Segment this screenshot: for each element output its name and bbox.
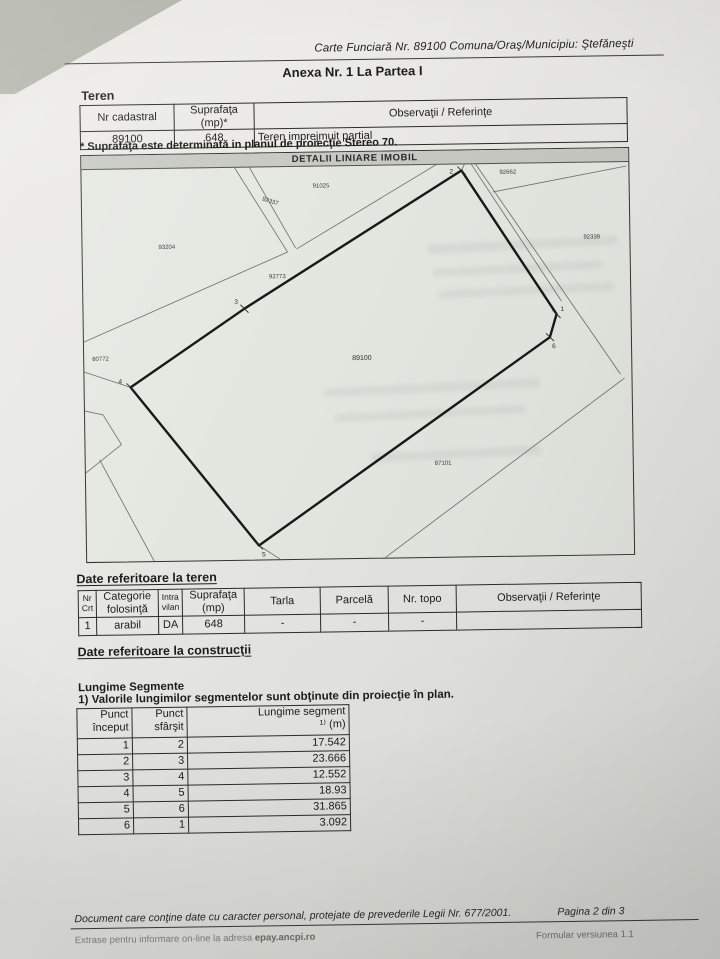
teren-details-table: Nr Crt Categorie folosinţă Intra vilan S… bbox=[78, 582, 643, 636]
vertex-label-6: 6 bbox=[552, 343, 556, 350]
constructii-heading: Date referitoare la construcţii bbox=[77, 643, 251, 660]
col-parcela: Parcelă bbox=[320, 586, 388, 614]
parcel-label-87101: 87101 bbox=[435, 461, 452, 467]
parcel-label-93204: 93204 bbox=[158, 245, 175, 251]
cadastral-map-drawing: 1 2 3 4 5 6 92662 91025 92337 93204 9277… bbox=[81, 162, 632, 562]
segments-table: Punct început Punct sfârşit Lungime segm… bbox=[76, 704, 351, 835]
seg-start: 4 bbox=[78, 786, 133, 803]
main-parcel-outline bbox=[127, 169, 559, 547]
val-categorie: arabil bbox=[97, 617, 159, 636]
vertex-label-5: 5 bbox=[262, 551, 266, 558]
footer-page-number: Pagina 2 din 3 bbox=[474, 905, 624, 919]
segment-row: 6 1 3.092 bbox=[78, 815, 350, 835]
parcel-label-80772: 80772 bbox=[92, 357, 109, 363]
col-lungime-line1: Lungime segment bbox=[258, 705, 346, 718]
col-nr-topo: Nr. topo bbox=[388, 585, 456, 613]
seg-end: 1 bbox=[133, 817, 188, 834]
col-intravilan: Intra vilan bbox=[158, 589, 182, 616]
seg-start: 1 bbox=[77, 738, 132, 755]
teren-heading: Teren bbox=[81, 89, 114, 103]
vertex-labels: 1 2 3 4 5 6 bbox=[115, 167, 568, 561]
teren-col-nr-cadastral: Nr cadastral bbox=[80, 104, 174, 132]
parcel-label-91025: 91025 bbox=[313, 183, 330, 189]
val-nr-crt: 1 bbox=[79, 617, 97, 635]
col-tarla: Tarla bbox=[244, 587, 320, 615]
seg-start: 3 bbox=[78, 770, 133, 787]
col-punct-sfarsit: Punct sfârşit bbox=[132, 707, 187, 738]
parcel-labels: 92662 91025 92337 93204 92773 92339 8077… bbox=[89, 168, 604, 472]
document-content: Carte Funciară Nr. 89100 Comuna/Oraş/Mun… bbox=[0, 0, 720, 959]
footer-form-version: Formular versiunea 1.1 bbox=[484, 929, 634, 942]
val-observatii bbox=[456, 609, 641, 630]
segments-header-row: Punct început Punct sfârşit Lungime segm… bbox=[77, 705, 349, 739]
footer-online-note: Extrase pentru informare on-line la adre… bbox=[75, 932, 316, 947]
parcel-label-92662: 92662 bbox=[499, 170, 516, 176]
vertex-label-4: 4 bbox=[118, 379, 122, 386]
col-suprafata: Suprafaţa (mp) bbox=[182, 588, 244, 616]
val-tarla: - bbox=[244, 614, 320, 633]
val-suprafata: 648 bbox=[183, 615, 245, 634]
seg-end: 4 bbox=[133, 769, 188, 786]
teren-details-heading: Date referitoare la teren bbox=[76, 570, 217, 586]
col-lungime-line2: ¹⁾ (m) bbox=[320, 718, 346, 730]
seg-start: 2 bbox=[78, 754, 133, 771]
val-intravilan: DA bbox=[159, 616, 183, 634]
col-categorie: Categorie folosinţă bbox=[96, 590, 158, 618]
teren-col-suprafata: Suprafaţa (mp)* bbox=[174, 103, 254, 130]
seg-end: 6 bbox=[133, 801, 188, 818]
col-observatii: Observaţii / Referinţe bbox=[456, 582, 641, 612]
main-parcel-label: 89100 bbox=[352, 355, 372, 362]
vertex-label-3: 3 bbox=[234, 299, 238, 306]
cadastral-map: DETALII LINIARE IMOBIL bbox=[80, 147, 635, 563]
vertex-ticks bbox=[123, 165, 564, 551]
register-header-line: Carte Funciară Nr. 89100 Comuna/Oraş/Mun… bbox=[244, 38, 634, 56]
vertex-label-1: 1 bbox=[560, 306, 564, 313]
page-bleed-through bbox=[322, 236, 620, 464]
col-lungime-segment: Lungime segment ¹⁾ (m) bbox=[187, 705, 349, 737]
parcel-label-92773: 92773 bbox=[269, 274, 286, 280]
seg-start: 5 bbox=[78, 802, 133, 819]
photo-frame: Carte Funciară Nr. 89100 Comuna/Oraş/Mun… bbox=[0, 0, 720, 959]
vertex-label-2: 2 bbox=[449, 169, 453, 176]
val-parcela: - bbox=[320, 613, 388, 632]
col-punct-inceput: Punct început bbox=[77, 708, 132, 739]
parcel-label-92337: 92337 bbox=[261, 197, 279, 208]
parcel-label-92339: 92339 bbox=[583, 234, 600, 240]
seg-end: 5 bbox=[133, 785, 188, 802]
seg-end: 3 bbox=[133, 753, 188, 770]
seg-end: 2 bbox=[132, 737, 187, 754]
val-nr-topo: - bbox=[388, 612, 456, 631]
annex-title: Anexa Nr. 1 La Partea I bbox=[79, 60, 626, 83]
seg-length: 3.092 bbox=[188, 815, 350, 833]
footer-online-prefix: Extrase pentru informare on-line la adre… bbox=[75, 933, 253, 947]
seg-start: 6 bbox=[78, 818, 133, 835]
col-nr-crt: Nr Crt bbox=[78, 590, 96, 617]
footer-online-site: epay.ancpi.ro bbox=[255, 932, 316, 944]
